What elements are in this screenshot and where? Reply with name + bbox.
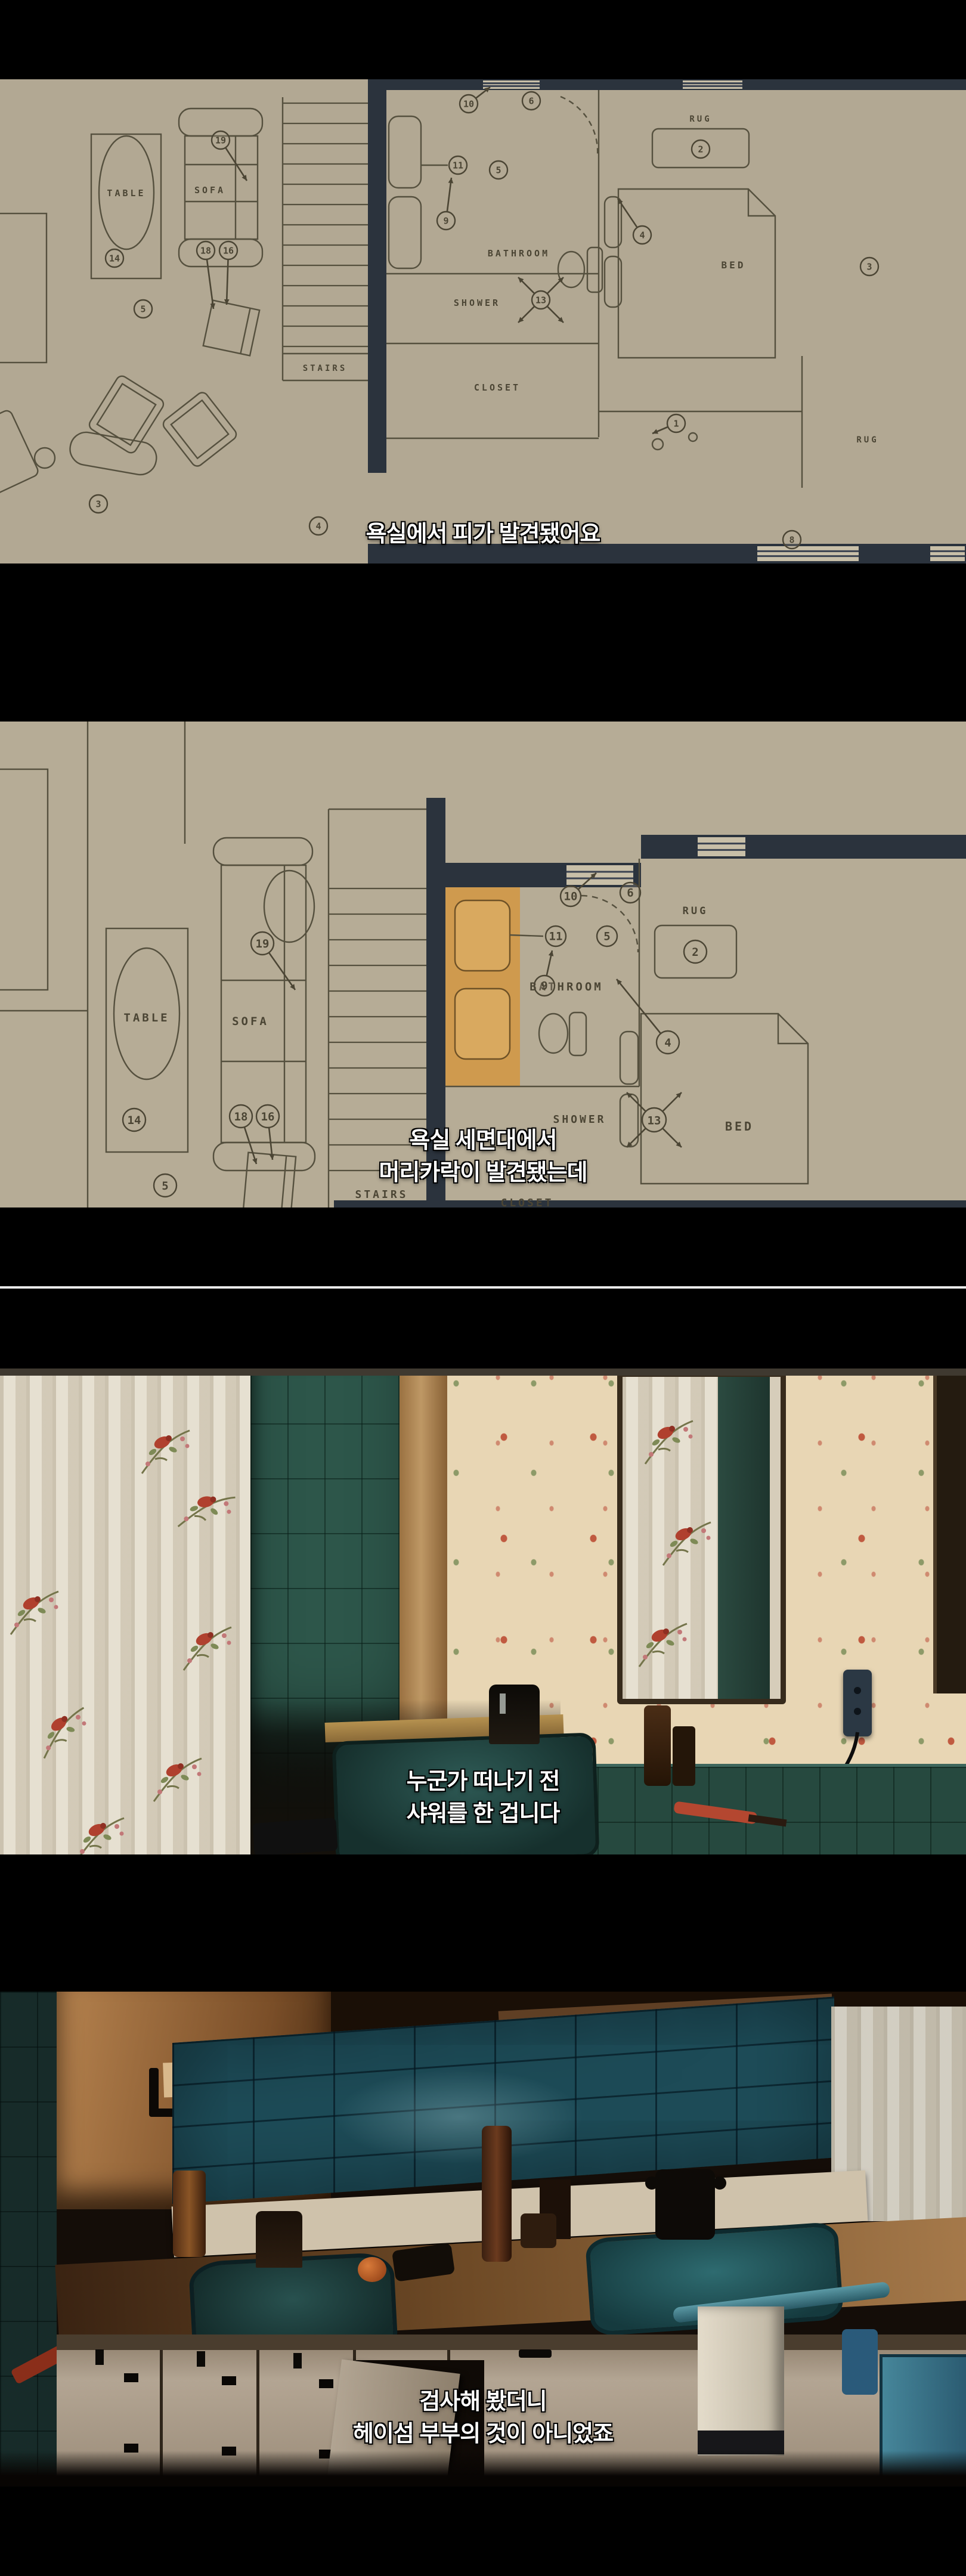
bed-outline — [618, 189, 775, 358]
plan-label: SHOWER — [454, 298, 500, 308]
evidence-marker-2: 2 — [684, 940, 707, 963]
evidence-markers: 1918161453410611591324318 — [89, 87, 878, 549]
svg-text:19: 19 — [256, 937, 270, 950]
evidence-marker-6: 6 — [620, 883, 640, 903]
plan-label: TABLE — [123, 1011, 169, 1024]
svg-text:2: 2 — [698, 144, 703, 155]
evidence-marker-5: 5 — [134, 300, 152, 318]
svg-text:14: 14 — [109, 253, 120, 264]
subtitle-line: 욕실에서 피가 발견됐어요 — [366, 522, 600, 547]
video-frame-sink-photo: 검사해 봤더니 헤이섬 부부의 것이 아니었죠 — [0, 1992, 966, 2487]
svg-text:18: 18 — [234, 1110, 248, 1123]
evidence-marker-3: 3 — [89, 495, 107, 513]
plan-label: STAIRS — [355, 1188, 408, 1201]
video-stills-stack: TABLESOFASTAIRSBATHROOMSHOWERCLOSETRUGBE… — [0, 0, 966, 2576]
staircase-steps — [283, 103, 368, 346]
evidence-marker-16: 16 — [219, 241, 237, 305]
sink-highlighted — [455, 989, 510, 1059]
plan-label: SOFA — [232, 1015, 269, 1028]
separator-line — [0, 1286, 966, 1289]
round-table — [264, 871, 314, 942]
evidence-dot — [652, 439, 663, 450]
wall-top-bedroom — [641, 835, 966, 859]
hinge — [222, 2376, 236, 2385]
evidence-marker-11: 11 — [449, 156, 467, 174]
counter-edge-shadow — [57, 2334, 966, 2350]
plan-label: BED — [722, 259, 746, 271]
left-faucet — [256, 2211, 302, 2268]
evidence-marker-11: 11 — [546, 926, 566, 946]
svg-text:11: 11 — [549, 930, 563, 943]
table-outline — [91, 134, 161, 278]
door-swing — [561, 97, 597, 155]
subtitle-line: 헤이섬 부부의 것이 아니었죠 — [0, 2418, 966, 2450]
svg-text:5: 5 — [496, 165, 501, 176]
subtitle-line: 누군가 떠나기 전 — [0, 1766, 966, 1798]
svg-text:3: 3 — [95, 499, 101, 510]
stool — [35, 448, 55, 468]
faucet-glint — [500, 1693, 506, 1714]
svg-text:6: 6 — [528, 96, 534, 107]
bath-fixture — [389, 116, 421, 188]
subtitle: 누군가 떠나기 전 샤워를 한 겁니다 — [0, 1766, 966, 1830]
furniture — [0, 97, 775, 495]
bench — [67, 430, 159, 478]
plan-label: RUG — [689, 114, 711, 124]
door-knob — [197, 2351, 205, 2367]
sink-highlighted — [455, 900, 510, 971]
table-outline — [106, 928, 188, 1152]
room-walls — [283, 90, 802, 488]
hinge — [124, 2373, 138, 2382]
video-frame-bathroom-photo: 누군가 떠나기 전 샤워를 한 겁니다 — [0, 1368, 966, 1854]
evidence-marker-2: 2 — [692, 140, 710, 158]
plan-label: SOFA — [194, 185, 225, 196]
plan-label: CLOSET — [500, 1197, 553, 1207]
toilet-bowl — [539, 1014, 568, 1053]
wall-top — [368, 79, 966, 90]
wall-bottom — [334, 1200, 966, 1207]
plan-label: RUG — [856, 435, 878, 445]
svg-text:16: 16 — [261, 1110, 275, 1123]
evidence-marker-18: 18 — [197, 241, 215, 309]
plan-label: STAIRS — [303, 364, 348, 373]
drawer-handle — [519, 2349, 552, 2358]
svg-text:5: 5 — [140, 304, 145, 315]
floorplan-wide-drawing: TABLESOFASTAIRSBATHROOMSHOWERCLOSETRUGBE… — [0, 79, 966, 563]
svg-text:9: 9 — [443, 216, 448, 227]
svg-text:4: 4 — [664, 1036, 671, 1049]
evidence-marker-3: 3 — [860, 258, 878, 275]
plan-label: CLOSET — [474, 382, 521, 393]
svg-text:4: 4 — [639, 230, 645, 241]
subtitle-line: 샤워를 한 겁니다 — [0, 1798, 966, 1830]
svg-text:19: 19 — [215, 135, 226, 146]
svg-text:18: 18 — [200, 246, 211, 256]
sofa-arm-top — [213, 838, 312, 865]
door-knob — [95, 2349, 104, 2365]
evidence-marker-19: 19 — [251, 932, 295, 990]
evidence-marker-14: 14 — [106, 249, 123, 267]
evidence-marker-9: 9 — [437, 178, 455, 230]
toilet-tank — [569, 1013, 586, 1055]
tall-bottle — [482, 2126, 512, 2262]
window-hatches — [483, 80, 965, 561]
pillow — [620, 1032, 638, 1084]
ceiling-edge — [0, 1368, 966, 1376]
svg-text:5: 5 — [603, 930, 610, 943]
evidence-marker-1: 1 — [652, 414, 685, 434]
svg-text:11: 11 — [453, 160, 463, 171]
evidence-marker-9: 9 — [534, 950, 555, 996]
subtitle: 검사해 봤더니 헤이섬 부부의 것이 아니었죠 — [0, 2386, 966, 2450]
subtitle: 욕실 세면대에서 머리카락이 발견됐는데 — [0, 1125, 966, 1189]
evidence-dot — [689, 433, 697, 441]
subtitle-line: 머리카락이 발견됐는데 — [0, 1157, 966, 1189]
jar-item — [521, 2213, 556, 2248]
subtitle-line: 욕실 세면대에서 — [0, 1125, 966, 1157]
plan-label: RUG — [683, 905, 708, 917]
side-table — [0, 769, 48, 990]
side-table — [0, 213, 47, 363]
faucet-handle — [713, 2176, 726, 2190]
subtitle-line: 검사해 봤더니 — [0, 2386, 966, 2418]
armchair-partial — [0, 409, 40, 496]
plan-label: SHOWER — [553, 1113, 606, 1126]
toilet-tank — [587, 247, 602, 292]
svg-text:1: 1 — [673, 419, 679, 429]
wall-stairs — [368, 79, 386, 473]
bath-fixture — [389, 197, 421, 268]
evidence-marker-5: 5 — [597, 926, 617, 946]
evidence-marker-4: 4 — [617, 979, 679, 1054]
right-faucet — [655, 2169, 715, 2240]
ottoman — [203, 301, 259, 356]
svg-text:13: 13 — [535, 295, 546, 306]
svg-text:10: 10 — [564, 890, 578, 903]
faucet — [489, 1685, 540, 1744]
svg-text:2: 2 — [692, 946, 698, 959]
plan-label: BATHROOM — [488, 248, 550, 259]
svg-text:10: 10 — [463, 99, 474, 110]
video-frame-floorplan-zoom: TABLESOFASTAIRSBATHROOMSHOWERCLOSETRUGBE… — [0, 722, 966, 1207]
copper-jug — [173, 2171, 206, 2257]
evidence-marker-13: 13 — [518, 277, 563, 323]
evidence-marker-5: 5 — [490, 161, 507, 179]
evidence-marker-19: 19 — [212, 131, 247, 181]
subtitle: 욕실에서 피가 발견됐어요 — [0, 518, 966, 550]
svg-text:6: 6 — [627, 886, 633, 899]
svg-text:9: 9 — [541, 979, 547, 992]
svg-text:16: 16 — [223, 246, 234, 256]
plan-label: TABLE — [107, 188, 145, 199]
svg-text:3: 3 — [866, 262, 872, 273]
door-knob — [293, 2353, 302, 2368]
toilet-bowl — [558, 252, 584, 287]
evidence-marker-6: 6 — [522, 92, 540, 110]
floor-shadow — [0, 2451, 966, 2487]
flash-highlight — [334, 2069, 584, 2165]
video-frame-floorplan-wide: TABLESOFASTAIRSBATHROOMSHOWERCLOSETRUGBE… — [0, 79, 966, 563]
peach — [358, 2257, 386, 2282]
evidence-marker-10: 10 — [460, 87, 490, 113]
blue-item — [842, 2329, 878, 2395]
faucet-handle — [645, 2176, 658, 2190]
evidence-marker-4: 4 — [618, 199, 651, 244]
